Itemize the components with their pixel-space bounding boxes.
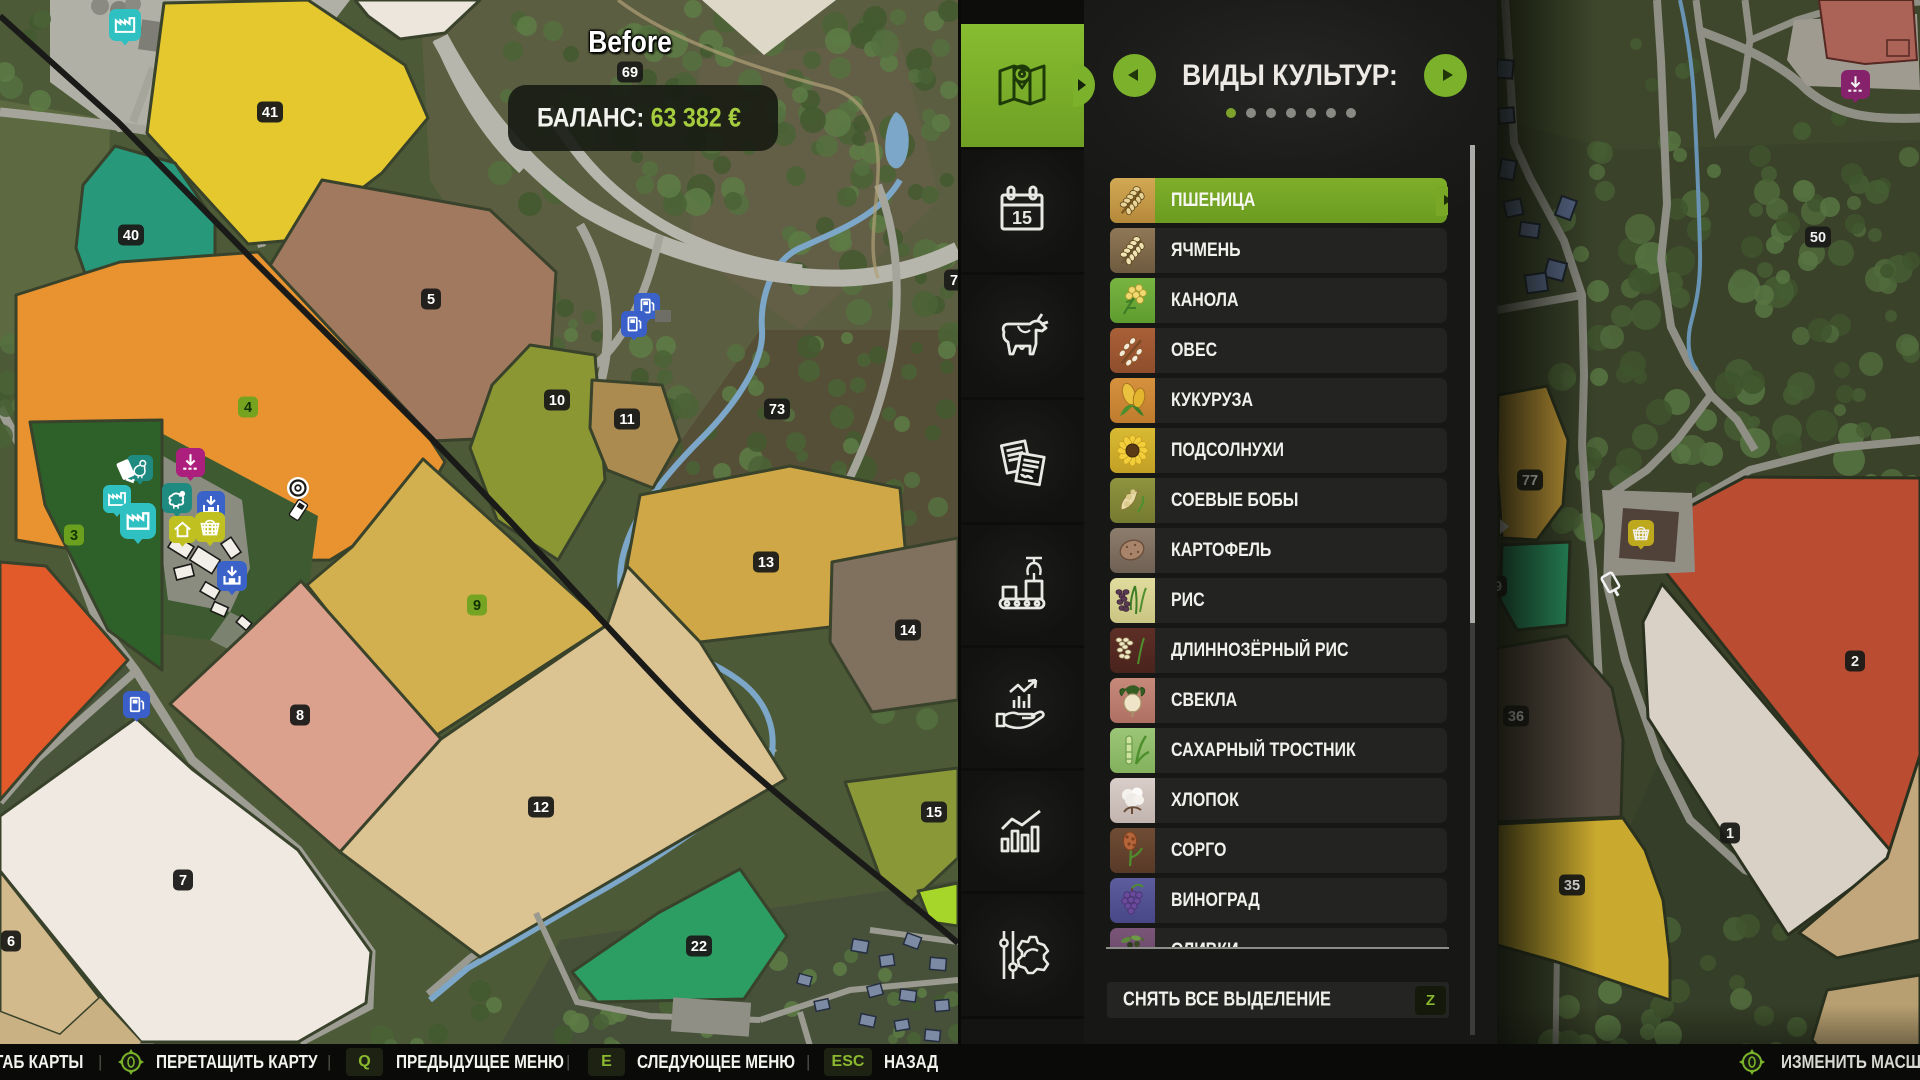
svg-text:15: 15: [926, 805, 942, 821]
svg-text:3: 3: [70, 528, 78, 544]
svg-text:8: 8: [296, 708, 304, 724]
svg-text:13: 13: [758, 555, 774, 571]
svg-text:9: 9: [473, 598, 481, 614]
svg-text:10: 10: [549, 393, 565, 409]
svg-text:69: 69: [622, 65, 638, 81]
svg-text:15: 15: [1012, 208, 1032, 228]
svg-text:5: 5: [427, 292, 435, 308]
svg-text:6: 6: [7, 934, 15, 950]
svg-text:22: 22: [691, 939, 707, 955]
svg-text:40: 40: [123, 228, 139, 244]
svg-text:7: 7: [179, 873, 187, 889]
svg-text:11: 11: [619, 412, 634, 428]
svg-text:14: 14: [900, 623, 916, 639]
svg-text:7: 7: [950, 273, 958, 289]
svg-text:12: 12: [533, 800, 549, 816]
svg-text:73: 73: [769, 402, 785, 418]
svg-text:4: 4: [244, 400, 252, 416]
svg-text:41: 41: [262, 105, 278, 121]
